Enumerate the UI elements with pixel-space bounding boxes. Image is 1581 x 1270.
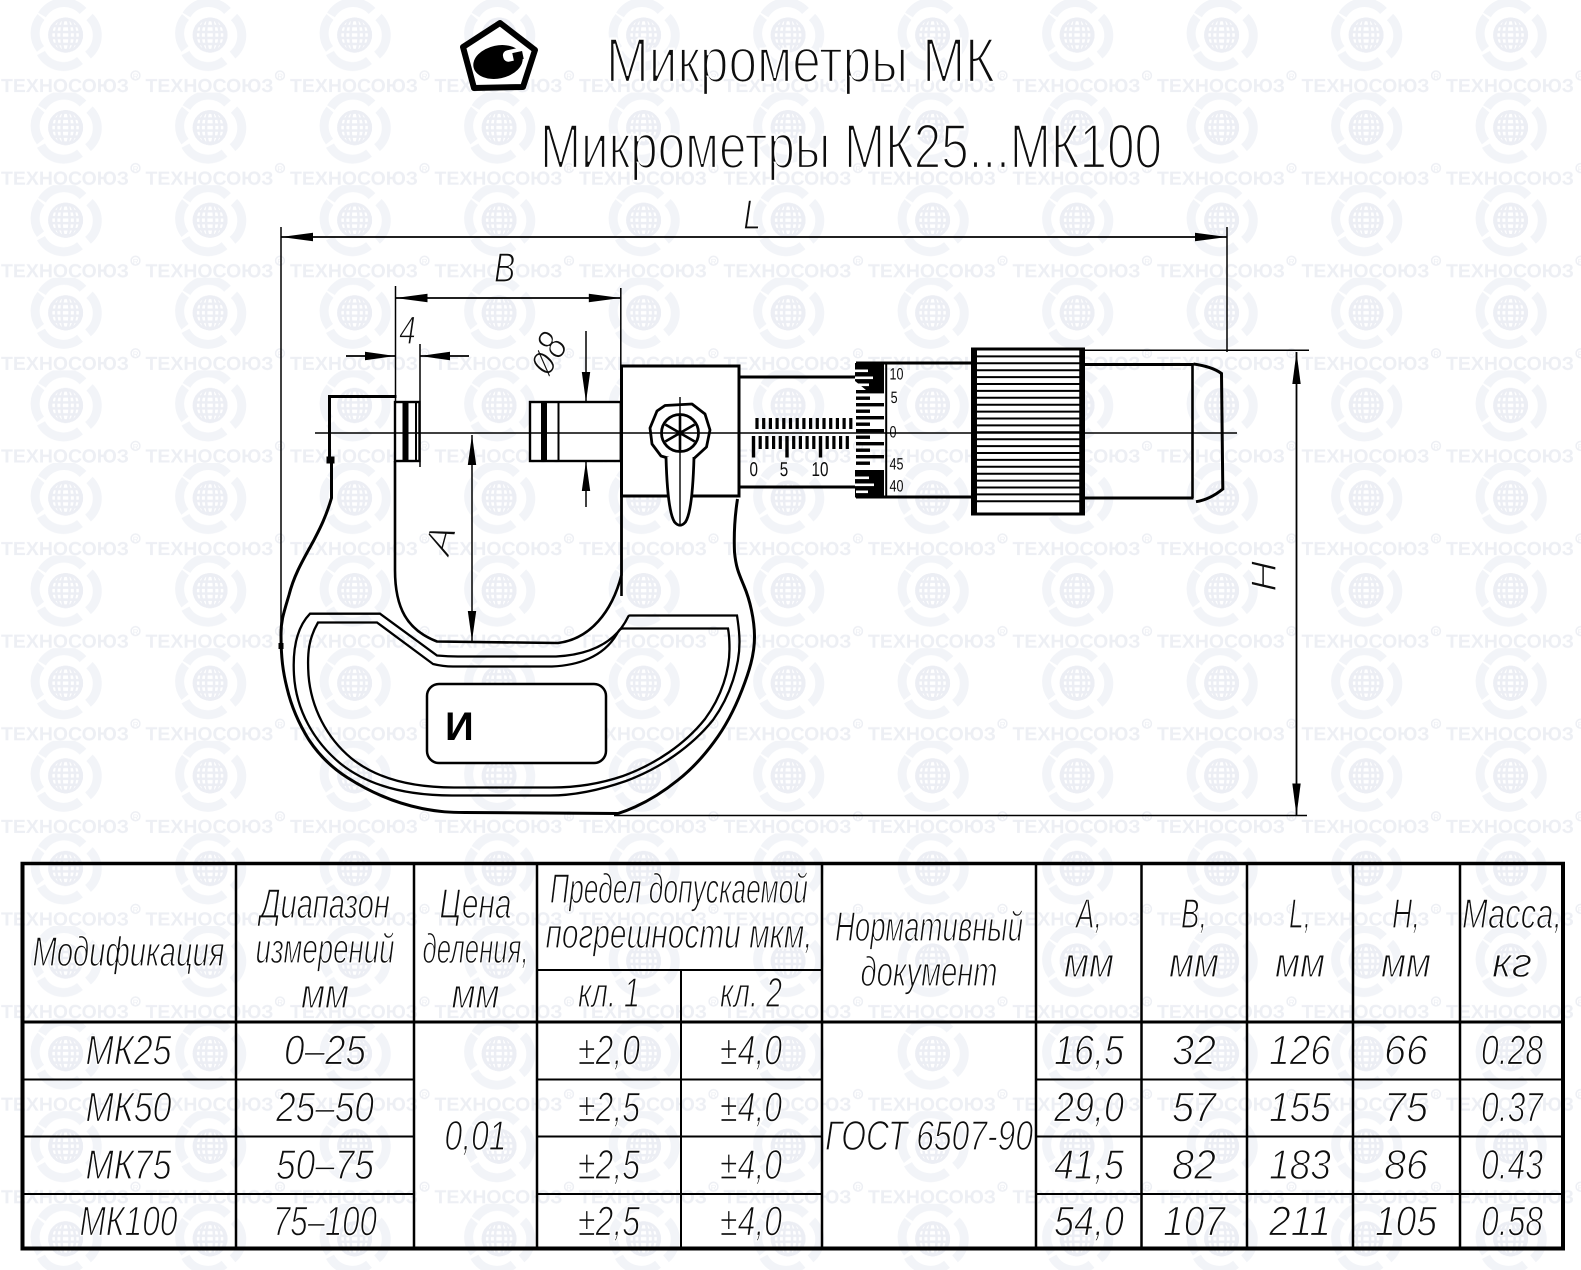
svg-text:измерений: измерений — [255, 925, 394, 972]
svg-text:±2,5: ±2,5 — [578, 1084, 641, 1131]
svg-text:0.58: 0.58 — [1481, 1198, 1543, 1245]
svg-text:211: 211 — [1268, 1198, 1331, 1245]
svg-text:86: 86 — [1384, 1141, 1429, 1188]
svg-text:50–75: 50–75 — [276, 1141, 374, 1188]
svg-text:±2,5: ±2,5 — [578, 1198, 641, 1245]
svg-text:В,: В, — [1181, 890, 1207, 937]
svg-text:±2,5: ±2,5 — [578, 1141, 641, 1188]
svg-text:Н,: Н, — [1392, 890, 1420, 937]
svg-text:Диапазон: Диапазон — [257, 880, 390, 927]
svg-text:мм: мм — [1169, 939, 1219, 986]
svg-text:±4,0: ±4,0 — [720, 1027, 783, 1074]
svg-text:B: B — [494, 244, 515, 291]
svg-text:0–25: 0–25 — [284, 1027, 367, 1074]
svg-text:мм: мм — [452, 970, 500, 1017]
svg-text:кл. 1: кл. 1 — [578, 969, 640, 1016]
svg-text:±4,0: ±4,0 — [720, 1084, 783, 1131]
svg-text:0.43: 0.43 — [1481, 1141, 1543, 1188]
svg-text:4: 4 — [399, 309, 416, 353]
svg-text:документ: документ — [861, 948, 998, 995]
svg-text:183: 183 — [1269, 1141, 1331, 1188]
svg-text:ГОСТ 6507-90: ГОСТ 6507-90 — [825, 1112, 1033, 1159]
svg-text:А,: А, — [1074, 890, 1102, 937]
svg-text:107: 107 — [1163, 1198, 1226, 1245]
svg-text:10: 10 — [890, 366, 904, 384]
svg-text:Масса,: Масса, — [1462, 890, 1562, 937]
svg-text:L,: L, — [1289, 890, 1311, 937]
svg-text:МК25: МК25 — [86, 1027, 173, 1074]
svg-text:5: 5 — [780, 459, 788, 481]
svg-text:5: 5 — [891, 389, 898, 407]
svg-text:82: 82 — [1172, 1141, 1216, 1188]
svg-text:0,01: 0,01 — [445, 1112, 507, 1159]
svg-text:126: 126 — [1269, 1027, 1332, 1074]
svg-text:29,0: 29,0 — [1053, 1084, 1124, 1131]
svg-text:МК75: МК75 — [86, 1141, 173, 1188]
svg-text:16,5: 16,5 — [1054, 1027, 1125, 1074]
svg-text:0.28: 0.28 — [1481, 1027, 1543, 1074]
svg-text:Микрометры МК: Микрометры МК — [606, 26, 995, 96]
svg-text:Предел допускаемой: Предел допускаемой — [550, 865, 808, 912]
svg-text:Нормативный: Нормативный — [835, 903, 1023, 950]
svg-text:погрешности мкм,: погрешности мкм, — [545, 910, 812, 957]
svg-text:деления,: деления, — [423, 925, 529, 972]
svg-text:мм: мм — [1381, 939, 1431, 986]
svg-text:±4,0: ±4,0 — [720, 1141, 783, 1188]
svg-text:25–50: 25–50 — [275, 1084, 374, 1131]
svg-text:Н: Н — [1243, 560, 1284, 592]
svg-text:10: 10 — [812, 459, 829, 481]
svg-text:Микрометры МК25...МК100: Микрометры МК25...МК100 — [540, 112, 1162, 182]
svg-text:105: 105 — [1375, 1198, 1438, 1245]
svg-text:54,0: 54,0 — [1054, 1198, 1125, 1245]
svg-text:75–100: 75–100 — [273, 1198, 377, 1245]
svg-text:мм: мм — [1064, 939, 1114, 986]
svg-text:0.37: 0.37 — [1481, 1084, 1544, 1131]
svg-text:32: 32 — [1172, 1027, 1216, 1074]
svg-text:±2,0: ±2,0 — [578, 1027, 641, 1074]
svg-text:кл. 2: кл. 2 — [720, 969, 782, 1016]
svg-text:40: 40 — [890, 478, 904, 496]
svg-text:155: 155 — [1269, 1084, 1332, 1131]
svg-text:мм: мм — [1275, 939, 1325, 986]
svg-text:кг: кг — [1492, 939, 1532, 986]
svg-text:±4,0: ±4,0 — [720, 1198, 783, 1245]
svg-text:41,5: 41,5 — [1054, 1141, 1125, 1188]
svg-text:мм: мм — [301, 970, 349, 1017]
svg-text:И: И — [445, 705, 474, 749]
svg-text:L: L — [743, 191, 761, 238]
svg-text:75: 75 — [1384, 1084, 1429, 1131]
svg-text:45: 45 — [890, 456, 904, 474]
svg-text:57: 57 — [1172, 1084, 1218, 1131]
svg-text:66: 66 — [1384, 1027, 1429, 1074]
svg-text:0: 0 — [749, 459, 757, 481]
svg-text:Модификация: Модификация — [33, 928, 225, 975]
svg-text:МК100: МК100 — [80, 1198, 178, 1245]
svg-text:Цена: Цена — [440, 880, 512, 927]
svg-text:МК50: МК50 — [86, 1084, 173, 1131]
